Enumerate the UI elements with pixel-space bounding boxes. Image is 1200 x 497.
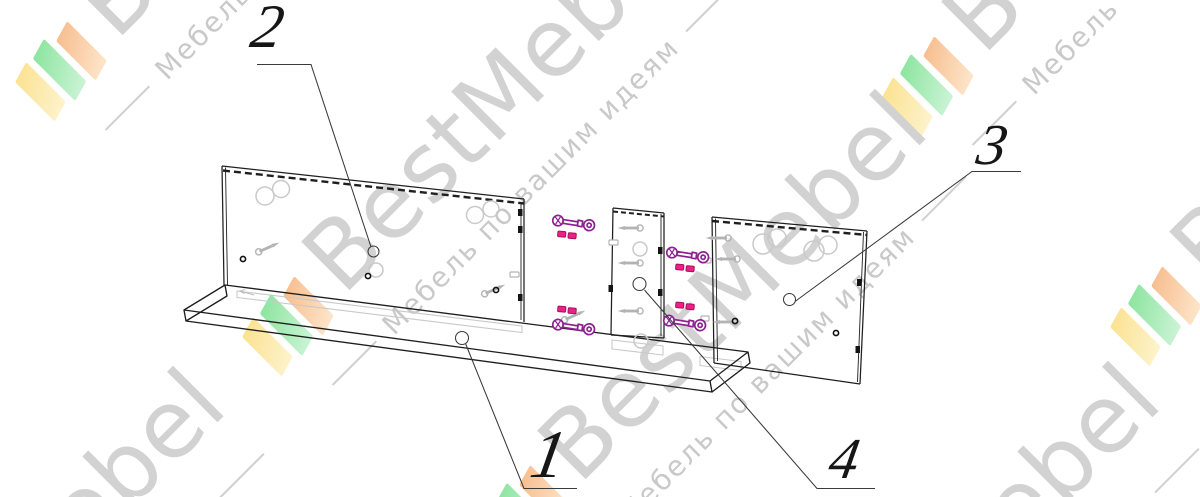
part-back-panel bbox=[222, 166, 524, 322]
cam-ring-marks bbox=[256, 181, 837, 349]
screw-marks bbox=[255, 225, 740, 325]
hidden-footprint-lines bbox=[237, 290, 741, 371]
part-side-panel bbox=[712, 217, 867, 384]
pilot-hole-marks bbox=[240, 256, 838, 335]
assembly-drawing bbox=[0, 0, 1200, 497]
leader-lines bbox=[257, 65, 1021, 489]
assembly-diagram-page: BestMebel Мебель по вашим идеям BestMebe… bbox=[0, 0, 1200, 497]
dowel-pair-fasteners bbox=[557, 231, 694, 314]
